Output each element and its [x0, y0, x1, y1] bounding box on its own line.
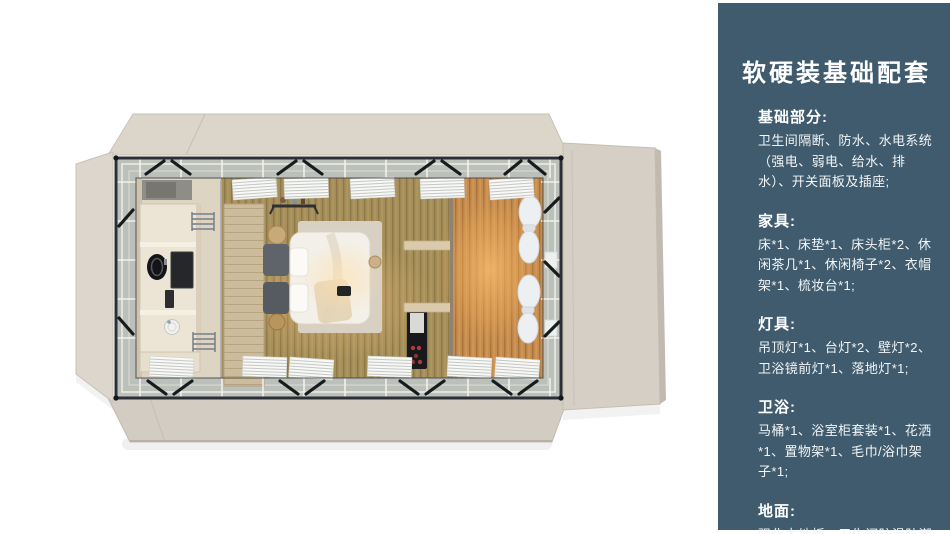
bed-tray	[337, 286, 351, 296]
spec-section-bathroom: 卫浴: 马桶*1、浴室柜套装*1、花洒*1、置物架*1、毛巾/浴巾架子*1;	[758, 396, 934, 483]
white-pillow	[290, 248, 308, 276]
section-heading-furniture: 家具:	[758, 210, 934, 231]
spec-section-flooring: 地面: 强化木地板、卫生间防滑防潮石塑板;	[758, 500, 934, 534]
section-heading-bathroom: 卫浴:	[758, 396, 934, 417]
section-heading-lighting: 灯具:	[758, 313, 934, 334]
section-body-bathroom: 马桶*1、浴室柜套装*1、花洒*1、置物架*1、毛巾/浴巾架子*1;	[758, 421, 934, 483]
fold-out-panel-top	[108, 114, 568, 155]
woven-stool	[269, 314, 285, 330]
fold-out-panel-left	[76, 152, 113, 402]
spec-section-lighting: 灯具: 吊顶灯*1、台灯*2、壁灯*2、卫浴镜前灯*1、落地灯*1;	[758, 313, 934, 379]
section-body-flooring: 强化木地板、卫生间防滑防潮石塑板;	[758, 525, 934, 534]
info-panel: 软硬装基础配套 基础部分: 卫生间隔断、防水、水电系统（强电、弱电、给水、排水）…	[718, 3, 950, 530]
slide-canvas: 软硬装基础配套 基础部分: 卫生间隔断、防水、水电系统（强电、弱电、给水、排水）…	[0, 0, 950, 534]
wall-shelf-stub	[404, 241, 451, 250]
headboard-pillow	[263, 282, 289, 314]
headboard-pillow	[263, 244, 289, 276]
section-heading-flooring: 地面:	[758, 500, 934, 521]
fold-out-panel-bottom	[108, 398, 568, 442]
spec-section-basics: 基础部分: 卫生间隔断、防水、水电系统（强电、弱电、给水、排水）、开关面板及插座…	[758, 106, 934, 193]
section-heading-basics: 基础部分:	[758, 106, 934, 127]
wall-shelf-stub	[404, 303, 451, 312]
section-body-lighting: 吊顶灯*1、台灯*2、壁灯*2、卫浴镜前灯*1、落地灯*1;	[758, 338, 934, 379]
toilet	[165, 320, 180, 335]
side-basket	[369, 256, 381, 268]
white-pillow	[290, 284, 308, 312]
panel-title: 软硬装基础配套	[742, 53, 934, 88]
spec-sections: 基础部分: 卫生间隔断、防水、水电系统（强电、弱电、给水、排水）、开关面板及插座…	[758, 106, 934, 534]
section-body-furniture: 床*1、床垫*1、床头柜*2、休闲茶几*1、休闲椅子*2、衣帽架*1、梳妆台*1…	[758, 235, 934, 297]
room-top-view-render	[0, 0, 718, 534]
spec-section-furniture: 家具: 床*1、床垫*1、床头柜*2、休闲茶几*1、休闲椅子*2、衣帽架*1、梳…	[758, 210, 934, 297]
room-divider	[450, 178, 453, 378]
fold-out-panel-right	[563, 143, 660, 410]
round-jute-rug	[268, 226, 286, 244]
section-body-basics: 卫生间隔断、防水、水电系统（强电、弱电、给水、排水）、开关面板及插座;	[758, 131, 934, 193]
room-render-area	[0, 0, 718, 534]
